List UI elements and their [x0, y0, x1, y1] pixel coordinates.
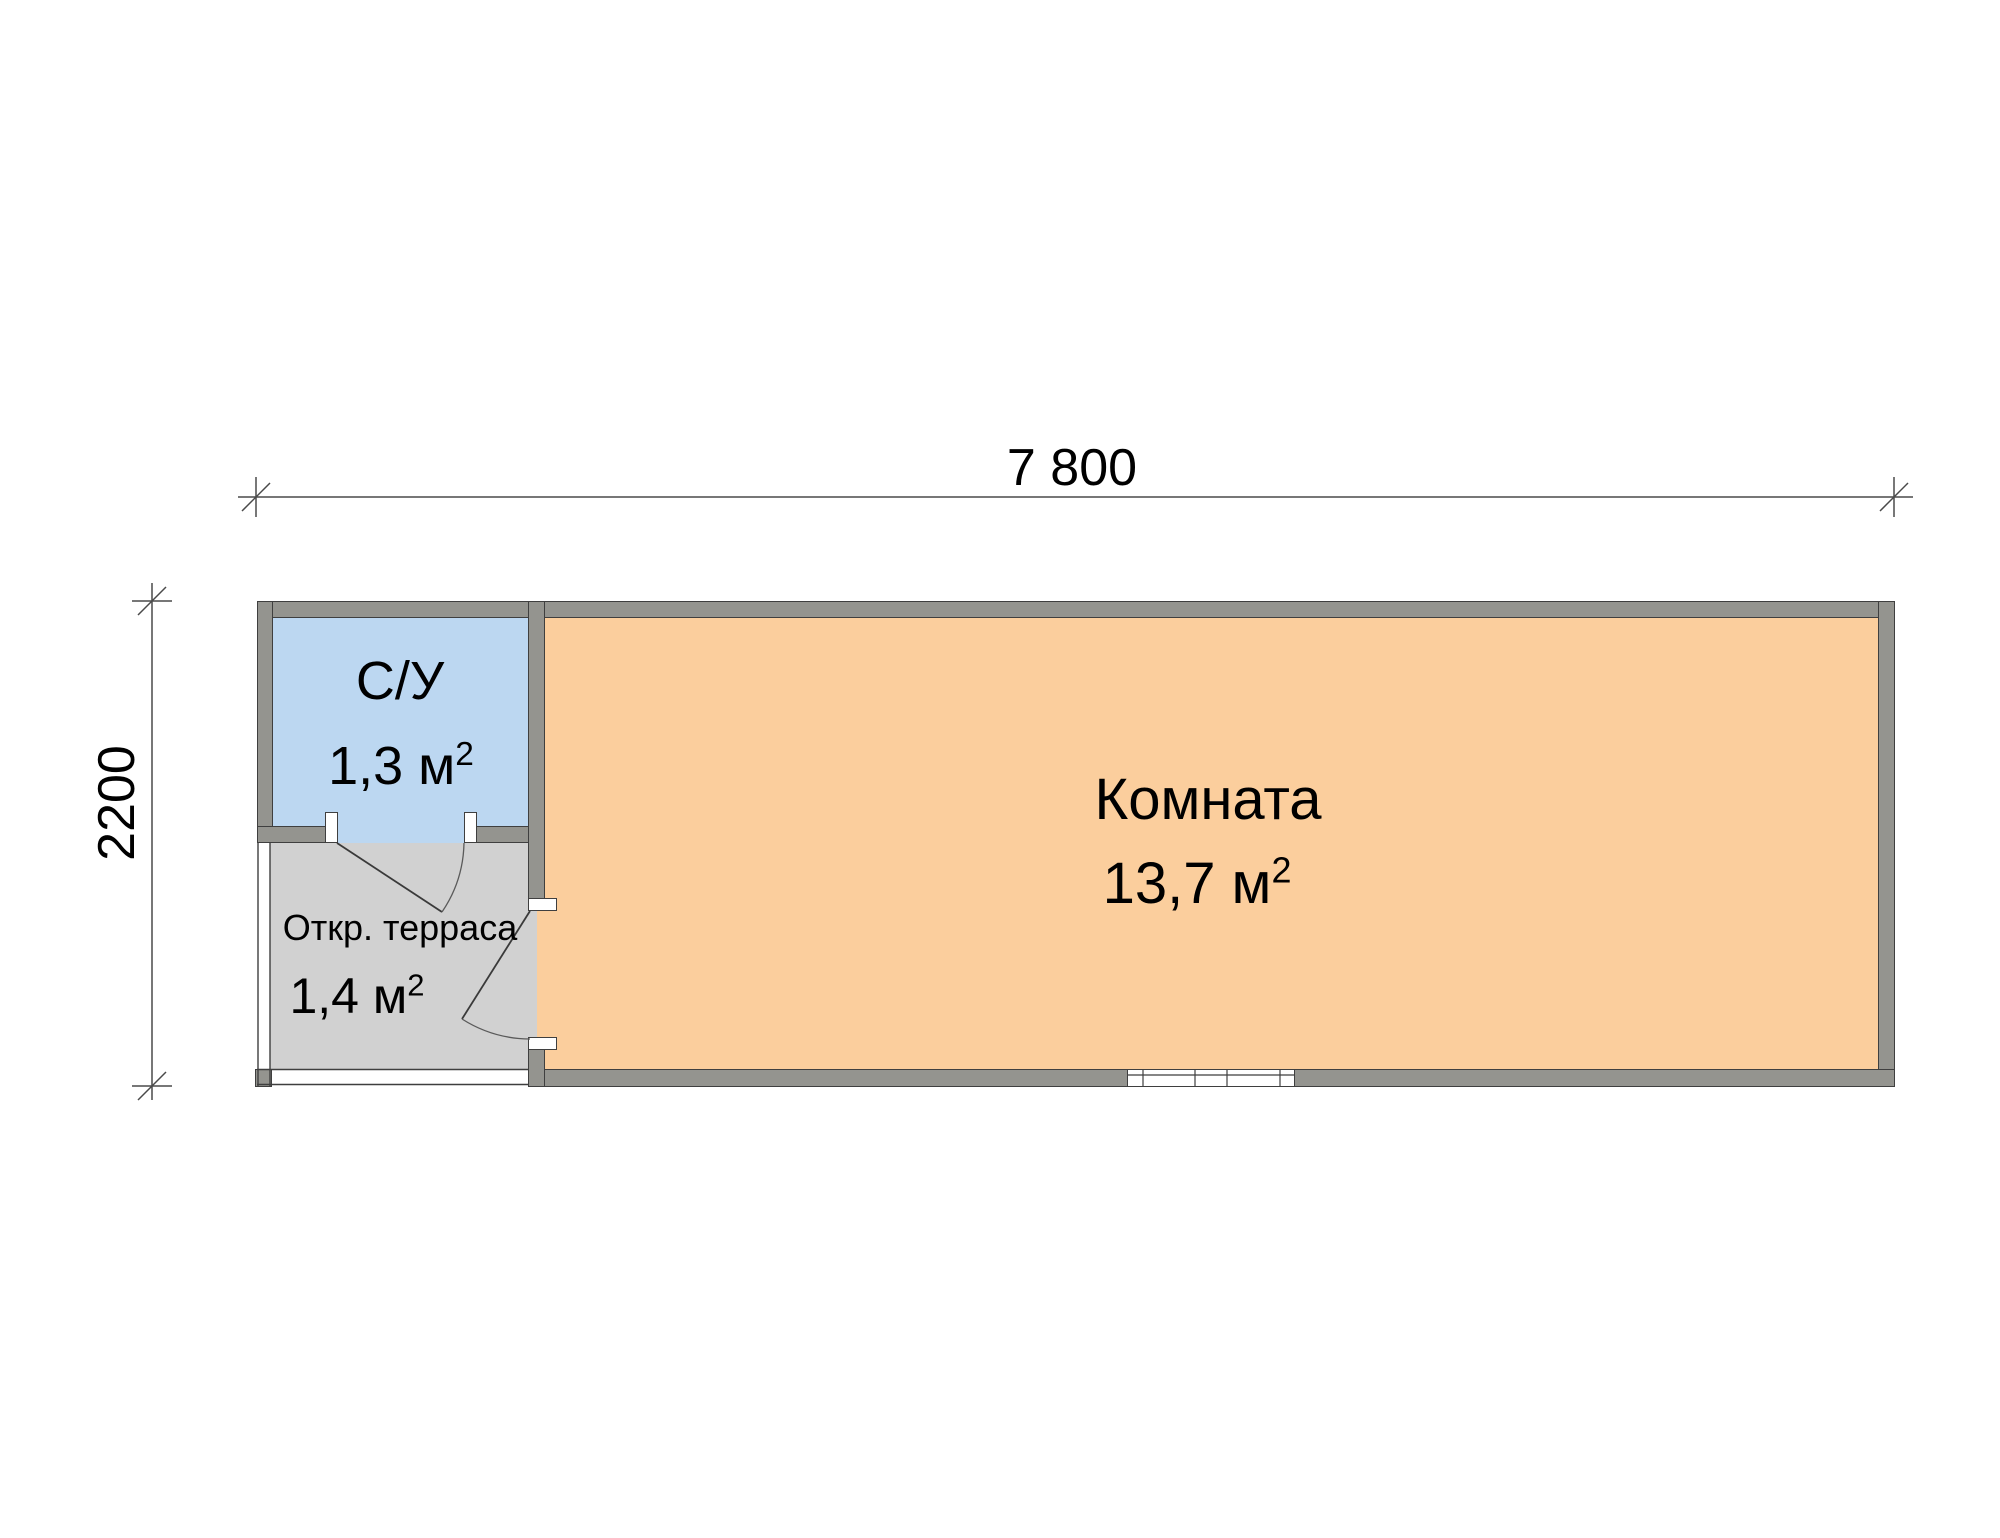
window-mullions: [1128, 1070, 1294, 1086]
linework-overlay: [0, 0, 2000, 1538]
living-area-value: 13,7 м: [1103, 851, 1272, 916]
bathroom-door: [337, 843, 464, 912]
terrace-area-exponent: 2: [407, 967, 424, 1002]
bathroom-door-swing-arc: [442, 843, 464, 912]
bathroom-area-value: 1,3 м: [328, 736, 455, 796]
living-area-label: 13,7 м2: [1103, 855, 1292, 913]
bathroom-area-exponent: 2: [455, 736, 474, 773]
living-name-label: Комната: [1094, 771, 1321, 829]
terrace-area-label: 1,4 м2: [289, 971, 424, 1021]
living-door-swing-arc: [462, 1019, 530, 1039]
living-area-exponent: 2: [1271, 850, 1291, 891]
bathroom-name-label: С/У: [356, 654, 444, 708]
terrace-area-value: 1,4 м: [289, 968, 407, 1024]
bathroom-door-leaf: [337, 843, 442, 912]
floor-plan-canvas: 7 800 2200 С/У 1,3 м2 Комната 13,7 м2 От…: [0, 0, 2000, 1538]
terrace-name-label: Откр. терраса: [283, 910, 517, 946]
bathroom-area-label: 1,3 м2: [328, 739, 474, 793]
height-dimension-label: 2200: [91, 745, 143, 861]
width-dimension-label: 7 800: [1007, 442, 1137, 494]
